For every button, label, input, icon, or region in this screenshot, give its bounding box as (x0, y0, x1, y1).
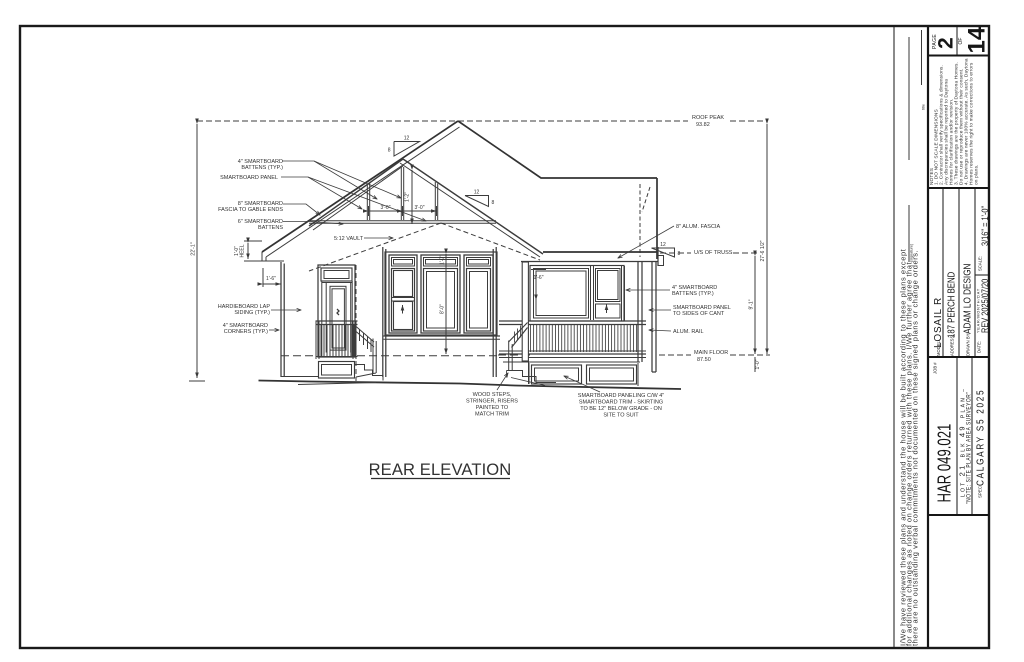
svg-text:187 PERCH BEND: 187 PERCH BEND (946, 271, 957, 338)
svg-text:TO BE 12" BELOW GRADE - ON: TO BE 12" BELOW GRADE - ON (580, 406, 662, 412)
svg-text:SMARTBOARD PANEL: SMARTBOARD PANEL (220, 175, 278, 181)
svg-text:MAIN FLOOR: MAIN FLOOR (694, 350, 728, 356)
svg-text:22'-1": 22'-1" (191, 242, 197, 256)
svg-text:12: 12 (474, 190, 480, 196)
svg-text:87.50: 87.50 (697, 357, 711, 363)
svg-text:3'-0": 3'-0" (381, 205, 391, 211)
svg-text:3'-0": 3'-0" (415, 205, 425, 211)
svg-text:REV 2025/07/20: REV 2025/07/20 (979, 279, 990, 333)
svg-text:8: 8 (388, 148, 391, 154)
svg-text:8: 8 (678, 251, 681, 257)
svg-text:"NOTE: SITE PLAN BY AREA SURVE: "NOTE: SITE PLAN BY AREA SURVEYOR" (966, 391, 973, 504)
svg-text:1'-0": 1'-0" (755, 359, 761, 369)
svg-text:BATTENS: BATTENS (258, 225, 283, 231)
svg-text:LOSAIL R: LOSAIL R (933, 297, 944, 348)
svg-text:8: 8 (492, 200, 495, 206)
svg-text:PAINTED TO: PAINTED TO (476, 405, 509, 411)
svg-text:ADAM LO DESIGN: ADAM LO DESIGN (960, 263, 972, 334)
svg-text:ROOF PEAK: ROOF PEAK (692, 115, 724, 121)
svg-text:SMARTBOARD PANELING C/W 4": SMARTBOARD PANELING C/W 4" (578, 393, 664, 399)
svg-text:DRAWN BY:: DRAWN BY: (966, 333, 971, 356)
svg-text:3/16" = 1'-0": 3/16" = 1'-0" (979, 206, 990, 246)
svg-text:BATTENS (TYP.): BATTENS (TYP.) (241, 165, 283, 171)
svg-text:REAR ELEVATION: REAR ELEVATION (369, 460, 512, 479)
svg-text:12: 12 (660, 242, 666, 248)
svg-text:5:12 VAULT: 5:12 VAULT (334, 236, 364, 242)
svg-text:HAR 049.021: HAR 049.021 (934, 424, 955, 503)
svg-text:on plans.: on plans. (974, 164, 980, 185)
svg-text:9'-1": 9'-1" (749, 299, 755, 309)
svg-text:1'-0": 1'-0" (440, 255, 446, 265)
svg-text:12: 12 (404, 136, 410, 142)
svg-text:MATCH TRIM: MATCH TRIM (475, 412, 509, 418)
svg-text:8" ALUM. FASCIA: 8" ALUM. FASCIA (676, 224, 720, 230)
svg-text:SIDING (TYP.): SIDING (TYP.) (234, 310, 270, 316)
svg-text:1'-2": 1'-2" (405, 192, 411, 202)
svg-text:FASCIA TO GABLE ENDS: FASCIA TO GABLE ENDS (218, 207, 283, 213)
svg-text:SITE TO SUIT: SITE TO SUIT (603, 413, 639, 419)
svg-text:1'-6": 1'-6" (266, 276, 276, 282)
svg-text:JOB #: JOB # (933, 362, 938, 374)
svg-text:ALUM. RAIL: ALUM. RAIL (673, 329, 704, 335)
svg-text:8'-0": 8'-0" (440, 304, 446, 314)
svg-text:BATTENS (TYP.): BATTENS (TYP.) (672, 291, 714, 297)
svg-text:CALGARY S5 2025: CALGARY S5 2025 (973, 389, 985, 486)
svg-text:HEEL: HEEL (240, 244, 246, 257)
svg-text:SCALE:: SCALE: (978, 256, 983, 271)
svg-text:27'-6 1/2": 27'-6 1/2" (760, 240, 766, 261)
svg-text:there are no outstanding verba: there are no outstanding verbal commitme… (911, 250, 920, 646)
svg-text:DATE:: DATE: (977, 341, 982, 353)
svg-text:SPEC:: SPEC: (978, 485, 983, 498)
svg-text:WOOD STEPS,: WOOD STEPS, (473, 392, 512, 398)
svg-text:1'-6": 1'-6" (534, 275, 544, 281)
svg-text:14: 14 (964, 26, 991, 53)
svg-text:2: 2 (935, 37, 958, 49)
svg-text:93.82: 93.82 (696, 122, 710, 128)
svg-text:SMARTBOARD TRIM - SKIRTING: SMARTBOARD TRIM - SKIRTING (579, 400, 663, 406)
svg-text:title: title (922, 104, 926, 110)
svg-text:TO SIDES OF CANT: TO SIDES OF CANT (673, 311, 725, 317)
svg-text:CORNERS (TYP.): CORNERS (TYP.) (224, 329, 268, 335)
svg-text:U/S OF TRUSS: U/S OF TRUSS (694, 250, 733, 256)
svg-text:STRINGER, RISERS: STRINGER, RISERS (466, 399, 518, 405)
